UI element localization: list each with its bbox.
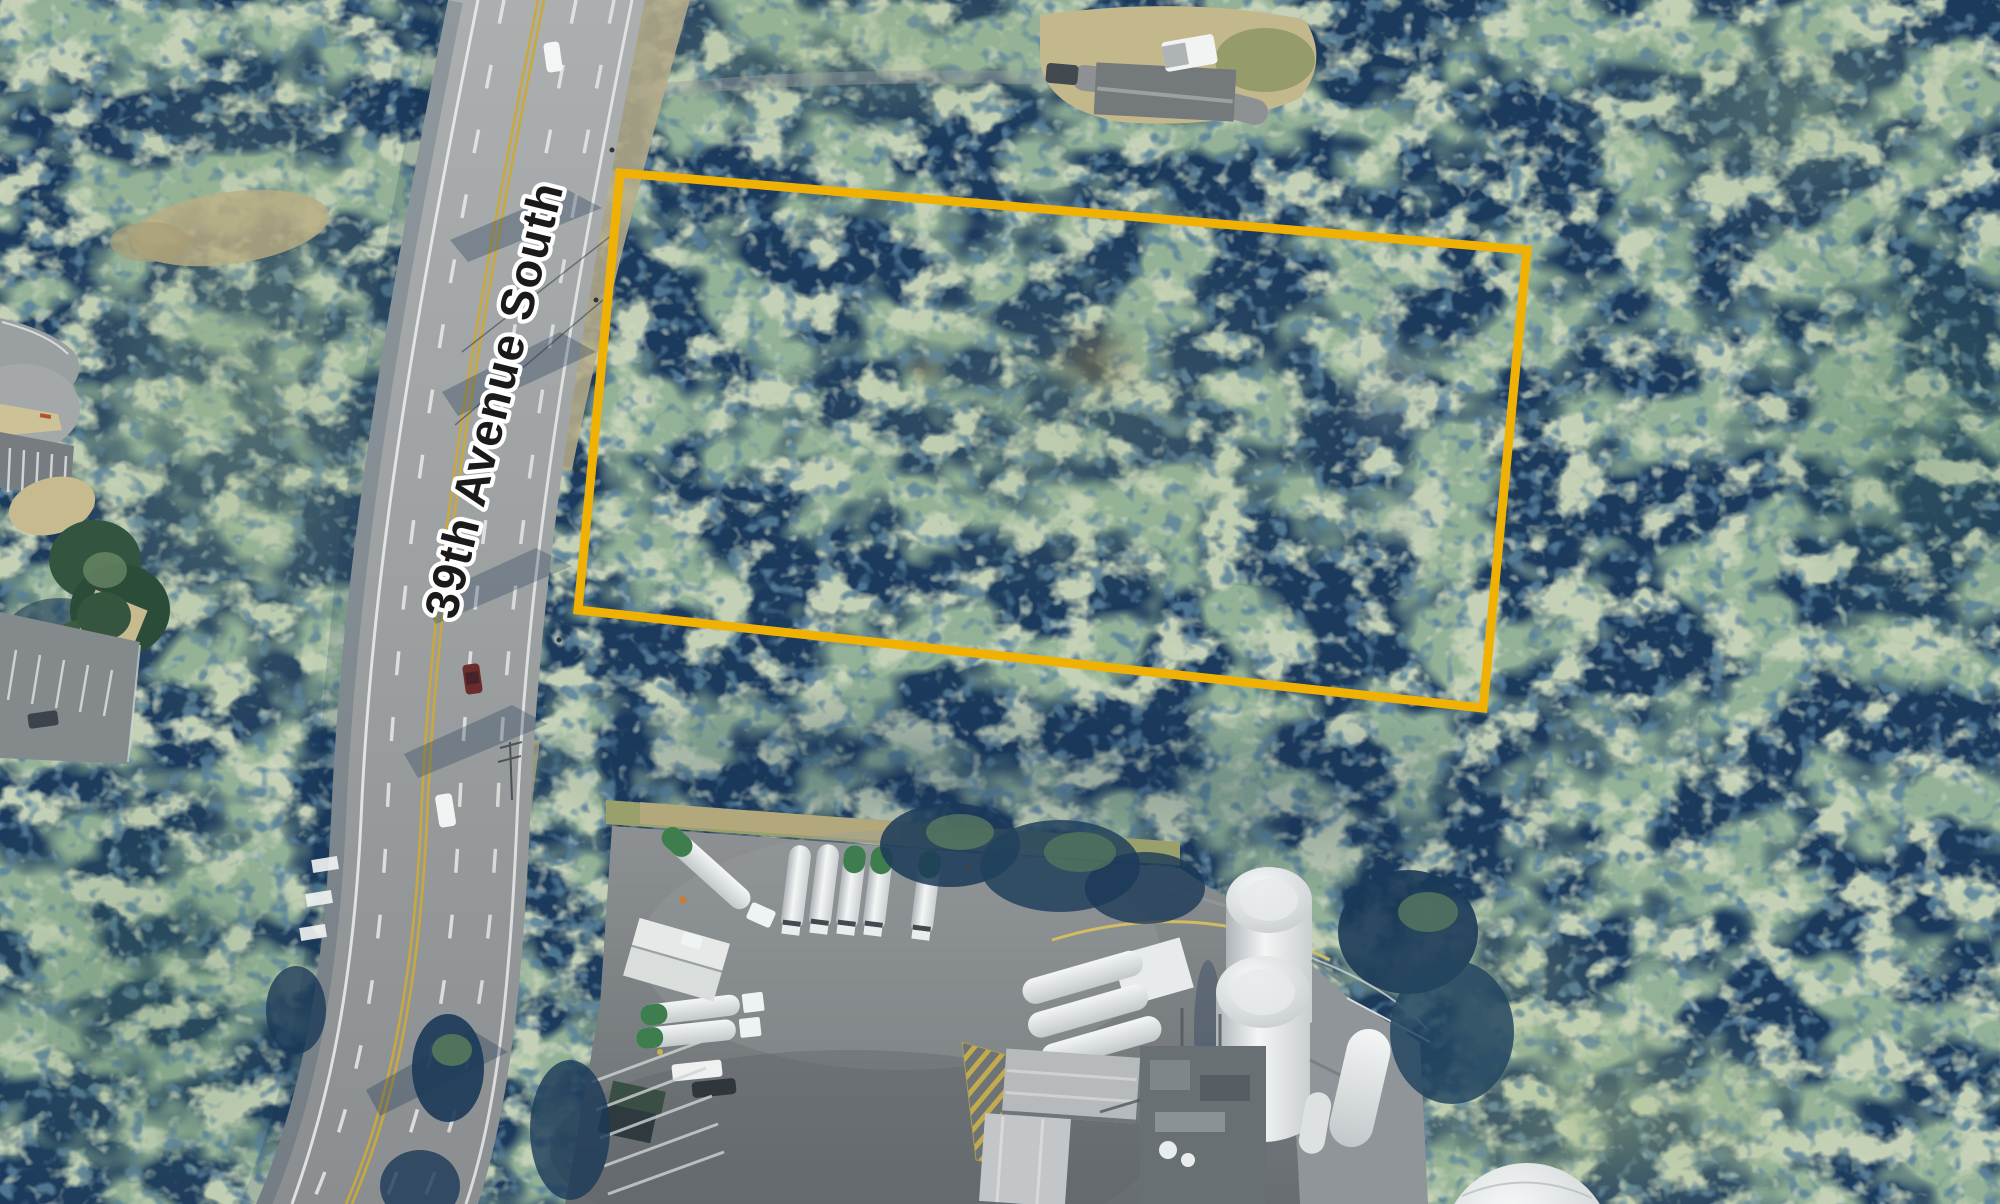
small-silo <box>1159 1141 1177 1159</box>
dead-tree-small <box>901 352 949 388</box>
truck-cab <box>742 992 765 1013</box>
tree-over-road <box>266 966 326 1054</box>
tree-lit-top <box>1044 832 1116 872</box>
tank-top-inner <box>1240 879 1298 921</box>
utility-pole <box>610 148 615 153</box>
building-b <box>979 1113 1071 1204</box>
tree-highlight <box>83 552 127 588</box>
tree-lit-top <box>926 814 994 850</box>
tree-clump-west <box>530 1060 610 1200</box>
dry-brush-small <box>110 222 190 262</box>
utility-pole <box>594 298 599 303</box>
truck-cab <box>739 1017 762 1038</box>
small-silo <box>1181 1153 1195 1167</box>
structure-detail <box>1200 1075 1250 1101</box>
tree-clump-east <box>1390 960 1514 1104</box>
tree-lit-top <box>432 1034 472 1066</box>
orange-cone <box>680 897 687 904</box>
parcel-interior-tint <box>760 230 1400 610</box>
building-roof <box>979 1113 1071 1204</box>
building-a <box>1002 1048 1140 1123</box>
utility-pole <box>575 468 580 473</box>
tree-over-road <box>412 1014 484 1122</box>
utility-pole <box>557 638 562 643</box>
structure-detail <box>1150 1060 1190 1090</box>
gray-snag-small <box>1370 478 1440 562</box>
parked-car <box>1045 63 1079 86</box>
gray-snag-patch <box>1335 333 1445 457</box>
truck-bed <box>1161 43 1188 69</box>
tree-lit-top <box>1398 892 1458 932</box>
structure-detail <box>1155 1112 1225 1132</box>
aerial-photo-svg: 39th Avenue South <box>0 0 2000 1204</box>
light-pole-base <box>657 1049 663 1055</box>
tank-top-inner <box>1231 969 1295 1015</box>
car-roof <box>465 671 480 685</box>
dead-tree-patch <box>1040 315 1150 405</box>
aerial-map: 39th Avenue South <box>0 0 2000 1204</box>
